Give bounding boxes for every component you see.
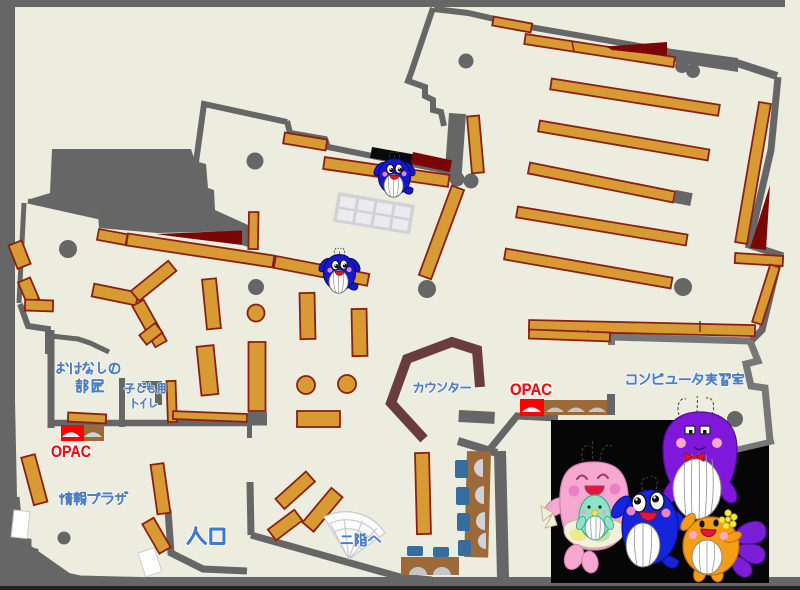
svg-text:OPAC: OPAC xyxy=(510,381,552,399)
svg-text:OPAC: OPAC xyxy=(51,443,91,461)
